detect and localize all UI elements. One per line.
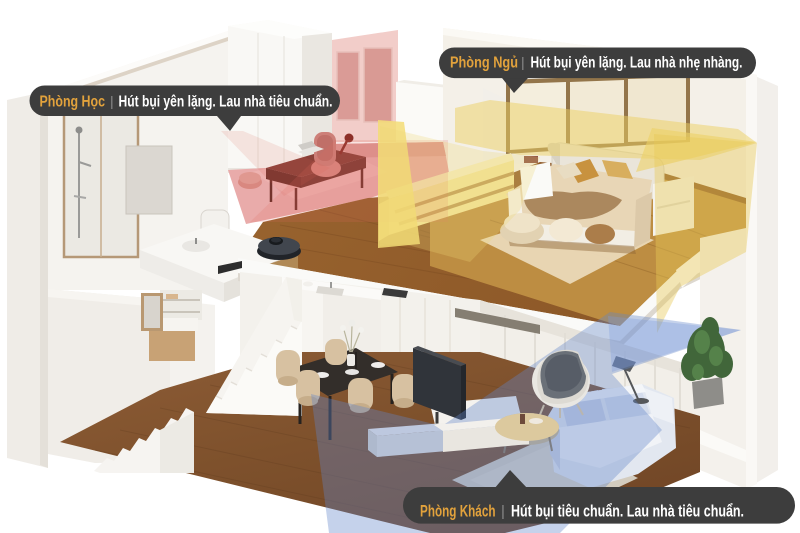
svg-text:Hút bụi yên lặng. Lau nhà nhẹ: Hút bụi yên lặng. Lau nhà nhẹ nhàng. (531, 55, 743, 72)
svg-text:Phòng Học: Phòng Học (40, 94, 106, 111)
svg-text:|: | (110, 93, 114, 109)
svg-text:Phòng Khách: Phòng Khách (420, 502, 496, 521)
svg-text:Phòng Ngủ: Phòng Ngủ (450, 55, 518, 72)
svg-text:|: | (501, 503, 505, 520)
svg-text:Hút bụi tiêu chuẩn. Lau nhà ti: Hút bụi tiêu chuẩn. Lau nhà tiêu chuẩn. (511, 502, 744, 521)
svg-text:Hút bụi yên lặng. Lau nhà tiêu: Hút bụi yên lặng. Lau nhà tiêu chuẩn. (119, 93, 333, 111)
svg-text:|: | (521, 54, 525, 70)
